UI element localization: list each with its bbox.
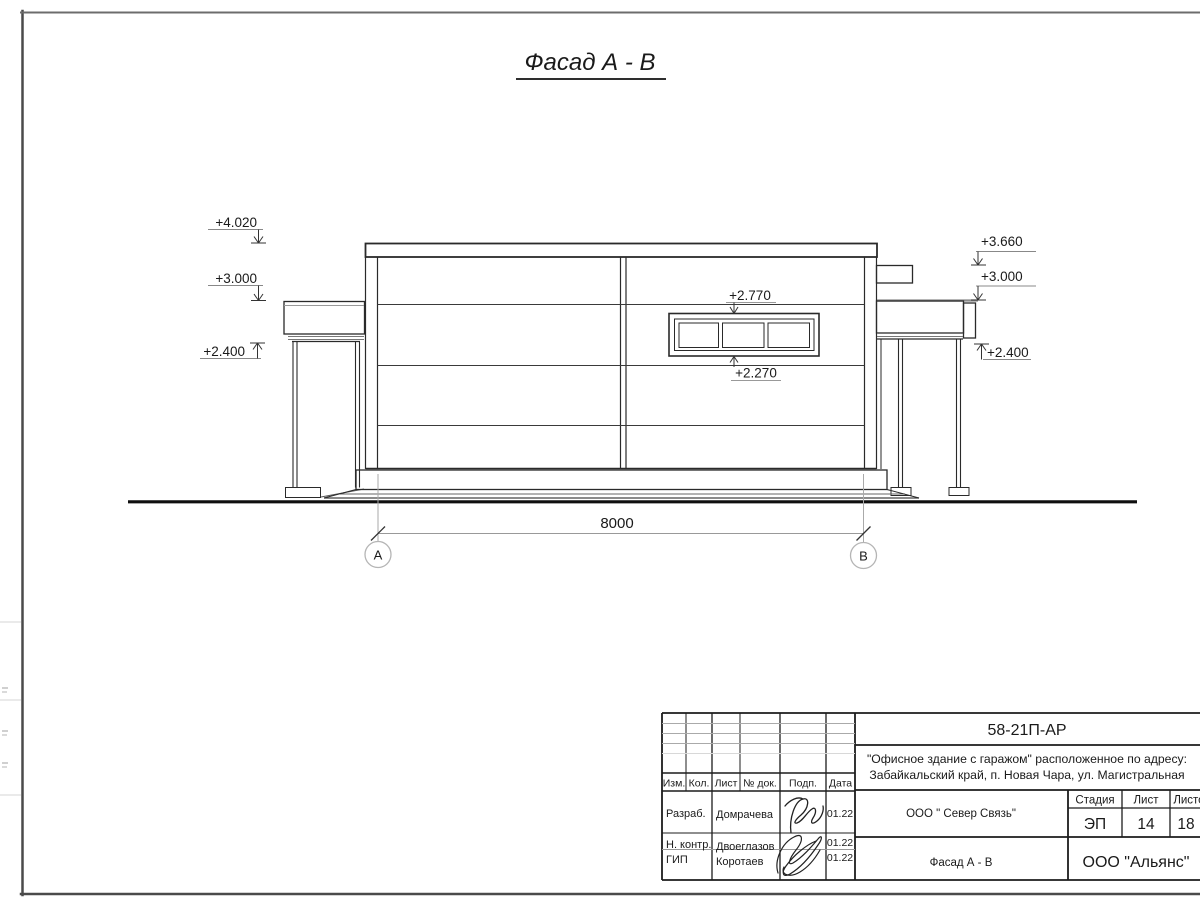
elevation-mark-window-bottom: +2.270 <box>730 357 781 381</box>
row-date: 01.22 <box>827 837 853 849</box>
sheet-label: Лист <box>1134 795 1160 807</box>
sheets-label: Листов <box>1173 795 1200 807</box>
sheets-value: 18 <box>1177 816 1194 833</box>
left-margin-stamp <box>0 622 21 795</box>
right-canopy <box>877 301 979 496</box>
level-value: +2.400 <box>987 345 1029 360</box>
col-doc: № док. <box>743 778 777 790</box>
parapet-band <box>366 244 878 258</box>
sheet-value: 14 <box>1137 816 1155 833</box>
project-address-line1: "Офисное здание с гаражом" расположенное… <box>867 752 1187 766</box>
axis-label-a: А <box>374 548 383 563</box>
chimney <box>877 266 913 284</box>
company-name: ООО "Альянс" <box>1083 854 1190 871</box>
building-base <box>324 470 919 498</box>
title-block: Изм. Кол. Лист № док. Подп. Дата Разраб.… <box>662 713 1200 880</box>
view-name: Фасад А - В <box>930 857 993 869</box>
col-data: Дата <box>829 778 852 790</box>
signature-razrab <box>785 798 823 833</box>
axis-label-b: В <box>859 549 868 564</box>
row-date: 01.22 <box>827 808 853 820</box>
col-kol: Кол. <box>689 778 710 790</box>
level-value: +3.660 <box>981 234 1023 249</box>
level-value: +3.000 <box>981 269 1023 284</box>
row-role: ГИП <box>666 854 688 866</box>
stage-value: ЭП <box>1084 816 1106 833</box>
row-name: Двоеглазов <box>716 841 775 853</box>
col-podp: Подп. <box>789 778 817 790</box>
elevation-mark-left-4020: +4.020 <box>208 215 266 243</box>
elevation-mark-right-3000: +3.000 <box>971 269 1036 300</box>
project-address-line2: Забайкальский край, п. Новая Чара, ул. М… <box>869 768 1184 782</box>
doc-number: 58-21П-АР <box>987 722 1066 739</box>
signature-gip <box>777 835 821 875</box>
elevation-mark-left-2400: +2.400 <box>200 343 265 359</box>
elevation-mark-left-3000: +3.000 <box>208 271 266 301</box>
main-wall <box>366 257 877 469</box>
ribbon-window <box>669 314 819 357</box>
level-value: +2.770 <box>729 288 771 303</box>
level-value: +4.020 <box>215 215 257 230</box>
row-date: 01.22 <box>827 852 853 864</box>
drawing-sheet: Фасад А - В <box>0 0 1200 900</box>
dimension-8000: 8000 <box>600 515 633 532</box>
stage-label: Стадия <box>1075 795 1114 807</box>
row-role: Разраб. <box>666 808 706 820</box>
axis-marker-a: А <box>365 542 391 568</box>
page-title: Фасад А - В <box>524 49 655 76</box>
axis-marker-b: В <box>851 543 877 569</box>
col-list: Лист <box>715 778 738 790</box>
elevation-mark-window-top: +2.770 <box>726 288 776 314</box>
row-role: Н. контр. <box>666 839 711 851</box>
bottom-dimension: 8000 А В <box>365 474 877 569</box>
level-value: +2.270 <box>735 366 777 381</box>
level-value: +3.000 <box>215 271 257 286</box>
facade-drawing-svg: Фасад А - В <box>0 0 1200 900</box>
row-name: Домрачева <box>716 809 774 821</box>
drawing-title: Фасад А - В <box>516 49 666 79</box>
col-izm: Изм. <box>663 778 686 790</box>
elevation-marks: +4.020 +3.000 +2.400 +3.660 <box>200 215 1036 381</box>
elevation-mark-right-2400: +2.400 <box>974 344 1031 360</box>
level-value: +2.400 <box>203 344 245 359</box>
elevation-mark-right-3660: +3.660 <box>971 234 1036 265</box>
left-canopy <box>284 302 365 498</box>
client-name: ООО " Север Связь" <box>906 808 1016 820</box>
row-name: Коротаев <box>716 856 764 868</box>
